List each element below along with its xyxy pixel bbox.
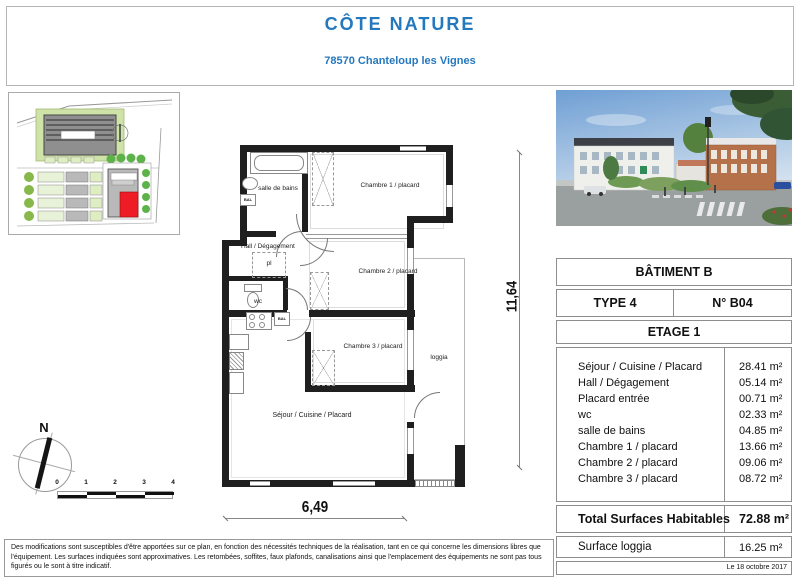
wall-left-lower <box>222 240 229 487</box>
number-cell: N° B04 <box>674 290 791 316</box>
page-title: CÔTE NATURE <box>0 14 800 35</box>
window-chambre3 <box>407 330 414 370</box>
surface-loggia-value: 16.25 m² <box>739 542 782 554</box>
door-gap-chambre3 <box>287 310 309 317</box>
surface-loggia-label: Surface loggia <box>578 541 652 553</box>
table-row: Hall / Dégagement05.14 m² <box>557 376 791 392</box>
burner-4 <box>259 322 265 328</box>
total-value: 72.88 m² <box>739 512 789 526</box>
door-arc-wc <box>286 288 308 310</box>
scale-number: 3 <box>142 479 146 486</box>
burner-3 <box>249 322 255 328</box>
table-divider <box>724 537 725 557</box>
type-number-row: TYPE 4 N° B04 <box>556 289 792 317</box>
room-label: Chambre 3 / placard <box>578 473 678 485</box>
site-plan-highlight-batiment-b <box>120 192 138 217</box>
room-label: salle de bains <box>578 425 645 437</box>
door-gap-loggia <box>407 392 414 422</box>
label-salle-de-bains: salle de bains <box>246 185 310 192</box>
label-sejour: Séjour / Cuisine / Placard <box>258 412 366 419</box>
loggia-railing <box>415 480 455 487</box>
placard-chambre2 <box>310 272 329 310</box>
placard-chambre3 <box>312 350 335 386</box>
dimension-width: 6,49 <box>281 499 349 517</box>
label-hall: Hall / Dégagement <box>241 243 315 250</box>
plan-sheet: CÔTE NATURE 78570 Chanteloup les Vignes <box>0 0 800 582</box>
wall-bath-bottom <box>240 231 276 237</box>
project-photo <box>556 90 792 226</box>
dimension-line-horizontal <box>225 518 405 519</box>
wall-right-upper <box>446 145 453 223</box>
label-loggia: loggia <box>417 354 461 361</box>
window-top <box>400 146 426 151</box>
room-area: 04.85 m² <box>739 425 782 437</box>
kitchen-counter <box>229 334 249 350</box>
table-row: Chambre 2 / placard09.06 m² <box>557 456 791 472</box>
table-row: Chambre 1 / placard13.66 m² <box>557 440 791 456</box>
table-row: wc02.33 m² <box>557 408 791 424</box>
project-photo-drawing <box>556 90 792 226</box>
table-row: Placard entrée00.71 m² <box>557 392 791 408</box>
room-area: 02.33 m² <box>739 409 782 421</box>
loggia-row: Surface loggia 16.25 m² <box>556 536 792 558</box>
scale-segment <box>145 492 174 498</box>
date-label: Le 18 octobre 2017 <box>727 564 787 571</box>
room-area: 09.06 m² <box>739 457 782 469</box>
scale-bar <box>57 491 173 499</box>
burner-1 <box>249 314 255 320</box>
scale-segment <box>58 492 87 498</box>
kitchen-sink <box>229 352 244 370</box>
batiment-label: BÂTIMENT B <box>635 265 712 279</box>
table-row: Séjour / Cuisine / Placard28.41 m² <box>557 360 791 376</box>
batiment-header: BÂTIMENT B <box>556 258 792 286</box>
total-label: Total Surfaces Habitables <box>578 512 730 526</box>
disclaimer-text: Des modifications sont susceptibles d'êt… <box>11 544 542 570</box>
label-chambre3: Chambre 3 / placard <box>324 343 422 350</box>
label-chambre2: Chambre 2 / placard <box>336 268 440 275</box>
scale-segment <box>87 492 116 498</box>
label-placard-entree: pl <box>252 260 286 267</box>
type-label: TYPE 4 <box>593 296 636 310</box>
water-heater-bath-label: BAL <box>240 197 256 202</box>
room-label: wc <box>578 409 591 421</box>
window-sejour-right <box>407 428 414 454</box>
date-row: Le 18 octobre 2017 <box>556 561 792 575</box>
north-label: N <box>30 420 58 435</box>
water-heater-kitchen-label: BAL <box>274 316 290 321</box>
label-chambre1: Chambre 1 / placard <box>336 182 444 189</box>
dimension-height: 11,64 <box>504 271 521 322</box>
fridge <box>229 372 244 394</box>
window-sejour-1 <box>250 481 270 486</box>
site-plan-map <box>8 92 180 235</box>
disclaimer-box: Des modifications sont susceptibles d'êt… <box>4 539 554 577</box>
window-chambre1 <box>446 185 453 207</box>
burner-2 <box>259 314 265 320</box>
toilet-tank <box>244 284 262 292</box>
window-sejour-2 <box>333 481 375 486</box>
scale-segment <box>116 492 145 498</box>
room-label: Hall / Dégagement <box>578 377 669 389</box>
room-area: 08.72 m² <box>739 473 782 485</box>
scale-number: 0 <box>55 479 59 486</box>
scale-number: 1 <box>84 479 88 486</box>
room-label: Placard entrée <box>578 393 650 405</box>
scale-number: 4 <box>171 479 175 486</box>
room-area: 13.66 m² <box>739 441 782 453</box>
room-area: 00.71 m² <box>739 393 782 405</box>
label-wc: wc <box>244 298 272 305</box>
placard-chambre1 <box>312 152 334 206</box>
etage-header: ETAGE 1 <box>556 320 792 344</box>
wall-ch3-left <box>305 332 311 390</box>
etage-label: ETAGE 1 <box>648 325 701 339</box>
wall-loggia-corner <box>455 445 465 487</box>
page-subtitle: 78570 Chanteloup les Vignes <box>0 55 800 67</box>
site-plan-drawing <box>9 93 177 232</box>
room-area: 05.14 m² <box>739 377 782 389</box>
room-label: Chambre 1 / placard <box>578 441 678 453</box>
scale-number: 2 <box>113 479 117 486</box>
wall-ch3-bottom <box>305 385 415 392</box>
room-areas-table: Séjour / Cuisine / Placard28.41 m² Hall … <box>556 347 792 502</box>
number-label: N° B04 <box>712 296 752 310</box>
room-area: 28.41 m² <box>739 361 782 373</box>
table-row: Chambre 3 / placard08.72 m² <box>557 472 791 488</box>
room-label: Chambre 2 / placard <box>578 457 678 469</box>
table-row: salle de bains04.85 m² <box>557 424 791 440</box>
type-cell: TYPE 4 <box>557 290 674 316</box>
bathtub-inner <box>254 155 304 171</box>
total-row: Total Surfaces Habitables 72.88 m² <box>556 505 792 533</box>
room-label: Séjour / Cuisine / Placard <box>578 361 702 373</box>
